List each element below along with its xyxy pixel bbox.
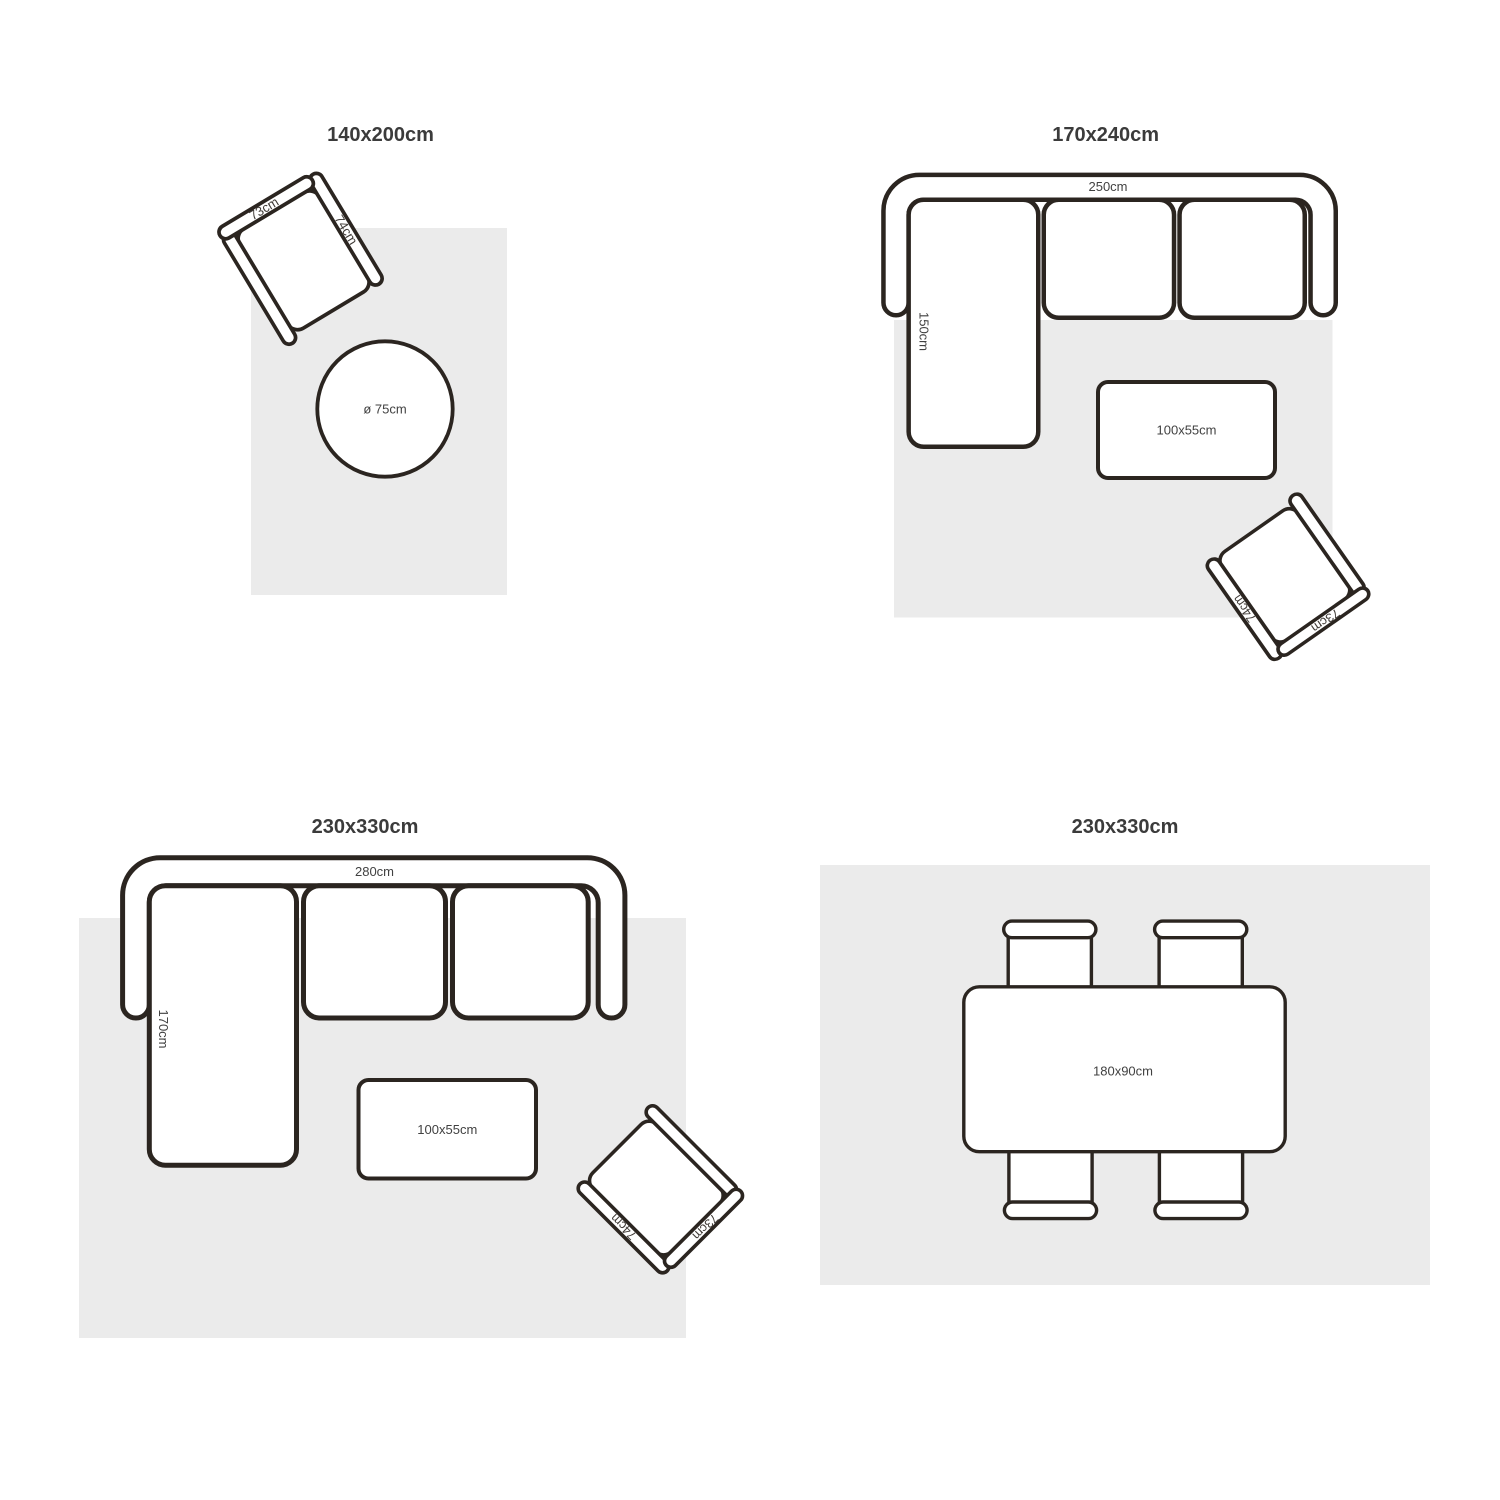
svg-text:280cm: 280cm [355,864,394,879]
svg-text:180x90cm: 180x90cm [1093,1064,1153,1079]
svg-text:100x55cm: 100x55cm [1157,423,1217,438]
svg-text:170x240cm: 170x240cm [1052,124,1159,146]
svg-text:230x330cm: 230x330cm [312,816,419,838]
svg-text:150cm: 150cm [917,312,932,351]
svg-text:100x55cm: 100x55cm [417,1122,477,1137]
svg-text:ø 75cm: ø 75cm [363,402,406,417]
svg-text:140x200cm: 140x200cm [327,124,434,146]
svg-text:230x330cm: 230x330cm [1072,816,1179,838]
svg-text:250cm: 250cm [1088,179,1127,194]
svg-text:170cm: 170cm [156,1009,171,1048]
